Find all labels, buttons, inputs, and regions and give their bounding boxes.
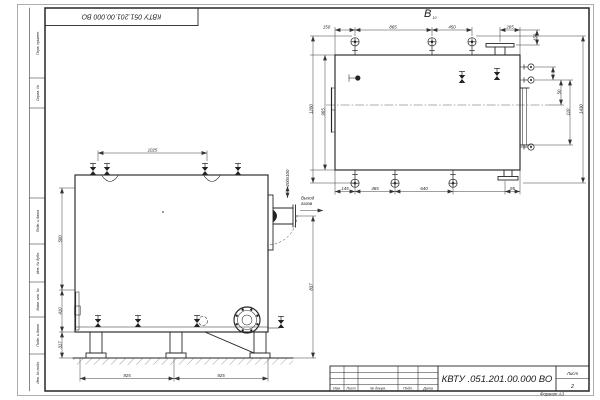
flanged-port-icon: [234, 307, 260, 333]
dim-label: 410: [57, 307, 62, 315]
margin-strip-label: Взам. инв. №: [36, 288, 40, 310]
hatch-slot: [204, 176, 220, 182]
level-gauge-icon: [520, 67, 529, 147]
valve-icon: [235, 163, 241, 175]
dim-label: 640: [420, 186, 428, 191]
valve-icon: [468, 38, 476, 55]
dim-label: 450: [448, 24, 456, 29]
dim-label: 465: [371, 186, 379, 191]
valve-icon: [428, 38, 436, 55]
dim-label: 150: [323, 25, 331, 30]
margin-strip-label: Инв. № дубл.: [36, 252, 40, 274]
valve-icon: [202, 163, 208, 175]
dim-label: 837: [309, 283, 314, 291]
dim-label: 1025: [148, 148, 158, 153]
sheet-number: 2: [570, 384, 574, 390]
engineering-drawing: Перв. примен. Справ. № Подп. и дата Инв.…: [0, 0, 600, 400]
margin-strip-label: Подп. и дата: [36, 210, 40, 233]
margin-strip-label: Инв. № подл.: [36, 361, 40, 383]
dim-label: 500: [57, 235, 62, 243]
sheet-label: Лист: [566, 371, 579, 376]
dim-label: 1260: [309, 104, 314, 114]
valve-icon: [459, 71, 465, 83]
valve-icon: [351, 38, 359, 55]
side-view: В 10: [326, 8, 549, 187]
dim-label: 150: [533, 33, 538, 41]
dim-label: 965: [321, 108, 326, 116]
margin-strip-label: Справ. №: [36, 85, 40, 101]
margin-strip-label: Подп. и дата: [36, 324, 40, 347]
outlet-label-line1: Выход: [301, 196, 315, 201]
margin-strip-label: Перв. примен.: [36, 31, 40, 55]
valve-icon: [524, 77, 534, 83]
dim-label: 925: [123, 373, 131, 378]
drawing-sheet: Перв. примен. Справ. № Подп. и дата Инв.…: [0, 0, 600, 400]
flange-nozzle-icon: [486, 44, 514, 56]
hidden-port-icon: [199, 317, 208, 326]
dim-label: 865: [389, 24, 397, 29]
title-block: Изм. Лист № докум. Подп. Дата КВТУ .051.…: [330, 366, 589, 396]
format-note: Формат А3: [540, 391, 565, 396]
dim-label: 145: [341, 186, 349, 191]
valve-icon: [494, 68, 500, 80]
valve-icon: [104, 163, 110, 175]
view-label-subscript: 10: [433, 16, 437, 20]
dim-label: 925: [217, 373, 225, 378]
title-col-podp: Подп.: [403, 386, 413, 390]
front-view-dimensions: 1025 500 410 317 837 925 925: [57, 148, 316, 382]
valve-icon: [135, 315, 141, 327]
ground-hatch: [73, 358, 293, 364]
view-label: В: [424, 8, 431, 20]
dim-label: 317: [57, 341, 62, 349]
title-col-izm: Изм.: [333, 386, 341, 390]
valve-icon: [95, 315, 101, 327]
top-stamp: КВТУ 051.201.00.000 ВО: [45, 8, 198, 26]
hatch-slot: [102, 176, 118, 182]
doc-number: КВТУ .051.201.00.000 ВО: [442, 374, 553, 385]
flue-size-label: 200x100: [285, 169, 290, 187]
outlet-label-line2: газов: [301, 201, 313, 206]
dim-label: 1430: [579, 104, 584, 114]
dim-label: 50: [557, 89, 562, 94]
support-legs: [73, 332, 293, 365]
dim-label: 110: [566, 108, 571, 116]
flange-nozzle-icon: [498, 170, 518, 180]
dim-label: 265: [505, 24, 514, 29]
valve-icon: [278, 316, 284, 328]
title-col-dokum: № докум.: [370, 386, 386, 390]
stamp-doc-number: КВТУ 051.201.00.000 ВО: [81, 12, 161, 19]
title-col-data: Дата: [422, 386, 432, 390]
title-col-list: Лист: [345, 386, 355, 390]
valve-icon: [194, 315, 200, 327]
flue-outlet-icon: [267, 195, 297, 250]
valve-icon: [524, 64, 534, 70]
side-tap-icon: [349, 75, 360, 82]
side-view-dimensions: 150 865 450 265 150 1260 965 145 465 640…: [309, 24, 586, 194]
front-view: 200x100 Выход газов: [73, 163, 323, 364]
center-mark: [162, 211, 164, 213]
valve-icon: [90, 163, 96, 175]
dim-label: 95: [510, 186, 515, 191]
